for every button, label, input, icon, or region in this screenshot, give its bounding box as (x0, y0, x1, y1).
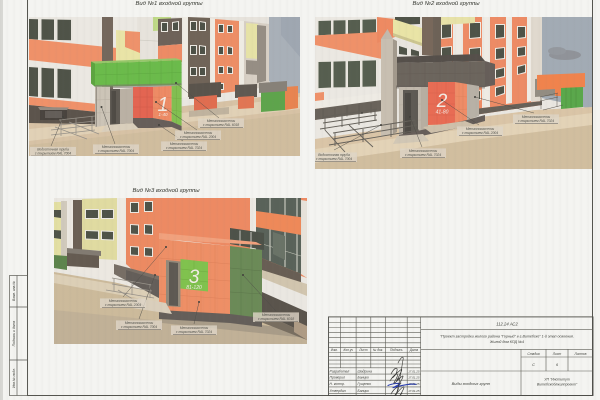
svg-text:Гущенко: Гущенко (358, 382, 372, 386)
svg-text:Кол.уч: Кол.уч (343, 348, 353, 352)
svg-text:Банцко: Банцко (358, 389, 369, 393)
svg-text:Виды входных групп: Виды входных групп (452, 381, 491, 386)
svg-text:Стадия: Стадия (527, 352, 540, 356)
svg-text:112.24 АС2: 112.24 АС2 (496, 321, 518, 326)
svg-text:Взам. инв.№: Взам. инв.№ (12, 281, 16, 301)
svg-text:"Проект застройки жилого район: "Проект застройки жилого района "Горный"… (440, 335, 574, 339)
svg-text:Подпись и дата: Подпись и дата (12, 321, 16, 347)
svg-text:Жилой дом КПД №4: Жилой дом КПД №4 (489, 340, 524, 344)
svg-text:УП "Институт: УП "Институт (544, 378, 570, 382)
svg-text:№ док.: № док. (373, 348, 383, 352)
svg-text:Лист: Лист (552, 352, 562, 356)
svg-text:17.01.25: 17.01.25 (408, 376, 420, 380)
svg-text:17.01.25: 17.01.25 (408, 389, 420, 393)
svg-text:Шадрина: Шадрина (358, 369, 373, 373)
svg-text:Проверил: Проверил (330, 376, 346, 380)
svg-text:Лист: Лист (358, 348, 368, 352)
svg-text:Подпись: Подпись (390, 348, 403, 352)
svg-text:Утвердил: Утвердил (330, 389, 346, 393)
svg-text:Инв.№ подл.: Инв.№ подл. (12, 368, 16, 388)
svg-text:Банцко: Банцко (358, 376, 369, 380)
svg-text:6: 6 (556, 363, 559, 367)
svg-text:С: С (532, 363, 535, 367)
svg-text:Витебскоблжилпроект": Витебскоблжилпроект" (537, 383, 578, 387)
svg-text:Изм.: Изм. (331, 348, 338, 352)
svg-text:Разработал: Разработал (330, 369, 350, 373)
svg-text:Н. контр.: Н. контр. (330, 382, 345, 386)
svg-text:17.01.25: 17.01.25 (408, 369, 420, 373)
svg-text:Листов: Листов (573, 352, 586, 356)
svg-text:Дата: Дата (409, 348, 419, 352)
